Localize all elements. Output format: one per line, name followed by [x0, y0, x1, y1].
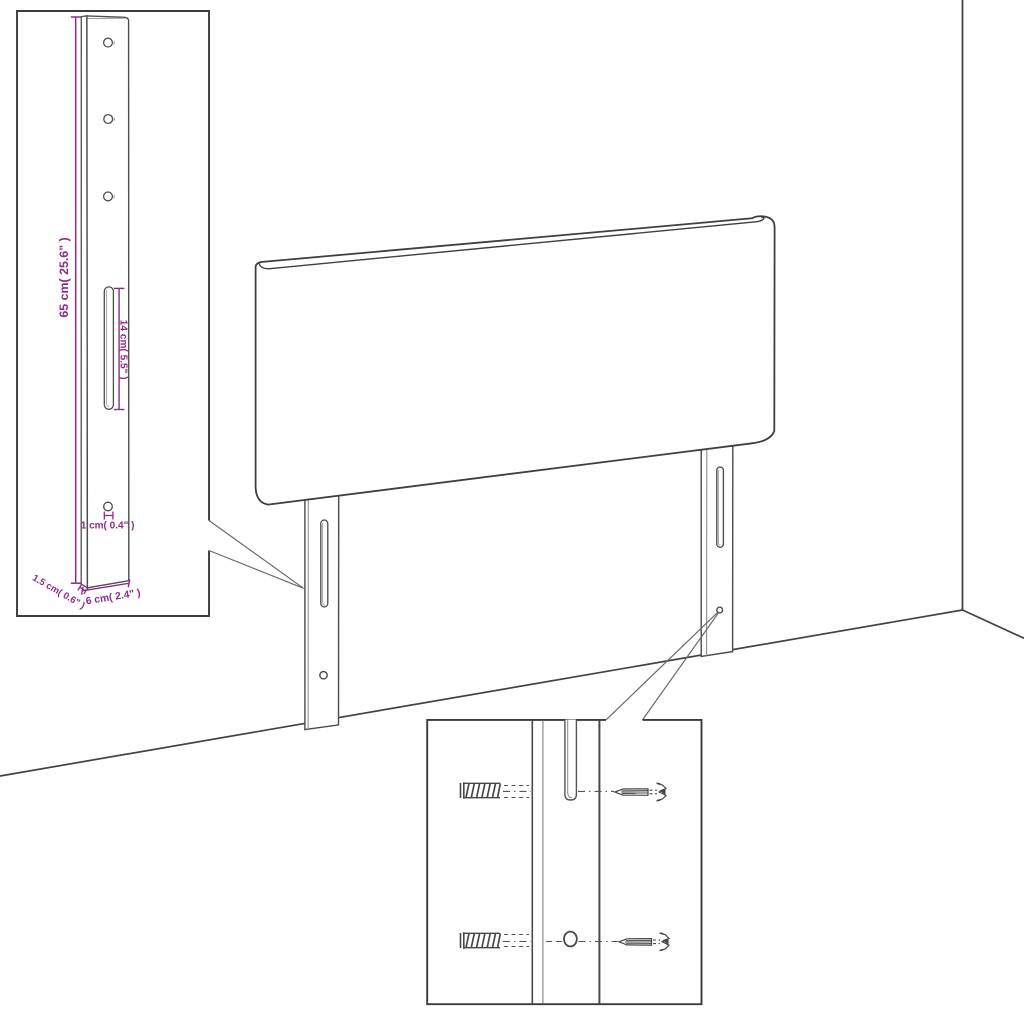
svg-text:65 cm( 25.6" ): 65 cm( 25.6" ): [57, 237, 71, 317]
svg-text:1 cm( 0.4" ): 1 cm( 0.4" ): [81, 520, 135, 531]
svg-text:14 cm( 5.5" ): 14 cm( 5.5" ): [118, 320, 129, 380]
